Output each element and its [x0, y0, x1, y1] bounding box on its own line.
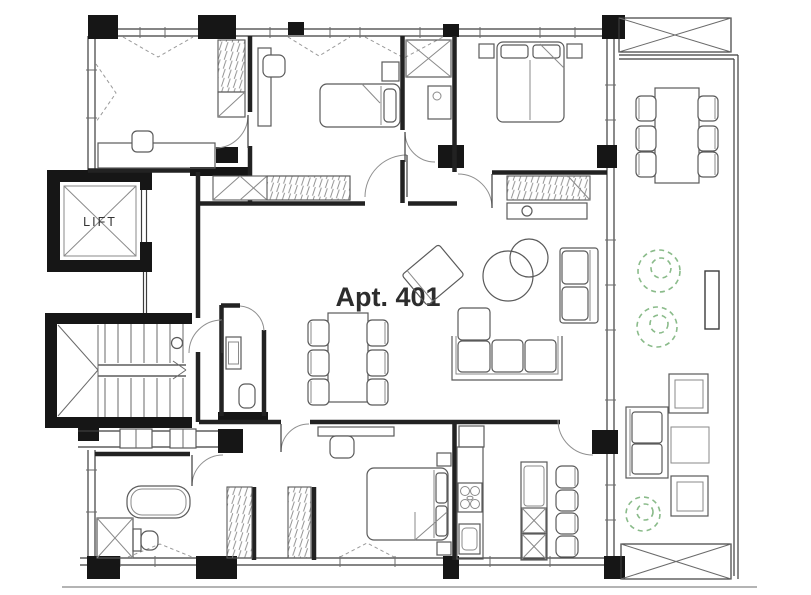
round-table [483, 251, 533, 301]
terrace-lounge-set [626, 374, 709, 516]
toilet [133, 529, 158, 551]
lift-label: LIFT [83, 215, 117, 229]
wc-room [226, 337, 255, 408]
terrace-dining-set [636, 88, 718, 183]
pillow [501, 45, 528, 58]
kitchen-sink [459, 524, 480, 554]
canopy-bottom [621, 544, 731, 579]
dressing-closet [406, 40, 451, 119]
window-swing-mark [96, 64, 116, 122]
staircase [45, 272, 218, 448]
terrace-dining-table [655, 88, 699, 183]
outdoor-coffee-table [671, 427, 709, 463]
window-swing-mark [123, 37, 193, 57]
living-dining-area: Apt. 401 [308, 239, 598, 405]
dresser [428, 86, 451, 119]
stool [132, 131, 153, 152]
bar-stools [556, 466, 578, 557]
console [507, 203, 587, 219]
toilet [239, 384, 255, 408]
door-arc [405, 132, 435, 162]
window-swing-mark [288, 37, 350, 56]
kitchen-island [521, 462, 547, 560]
pillow [533, 45, 560, 58]
nightstand [567, 44, 582, 58]
bedroom-top-right [479, 42, 590, 219]
wardrobe [227, 487, 252, 558]
door-arc [281, 424, 309, 452]
entry-door-arc [189, 320, 222, 353]
loveseat-sofa [560, 248, 598, 323]
door-arc [458, 174, 492, 208]
stair-newel [172, 338, 183, 349]
wardrobe [267, 176, 350, 200]
door-arc [240, 306, 264, 331]
decor-item [522, 206, 532, 216]
dining-table [328, 313, 368, 402]
floor-plan-drawing: LIFT [0, 0, 811, 595]
kitchen [457, 426, 578, 560]
outdoor-loveseat [626, 407, 668, 478]
apartment-label: Apt. 401 [335, 282, 440, 312]
nightstand [382, 62, 399, 81]
door-arc [215, 115, 248, 148]
wardrobe [507, 176, 590, 200]
lift-shaft: LIFT [47, 170, 152, 272]
potted-plants [626, 250, 680, 531]
nightstand [479, 44, 494, 58]
pillow [436, 506, 447, 536]
wardrobe [288, 487, 311, 558]
floor-plan-canvas: LIFT [0, 0, 811, 595]
wardrobe [218, 40, 245, 92]
canopy-top [619, 18, 731, 52]
single-bed [320, 84, 400, 127]
window-swing-mark [340, 543, 394, 557]
desk-chair [263, 55, 285, 77]
pillow [384, 89, 396, 122]
terrace [619, 18, 738, 579]
cooktop [458, 483, 482, 512]
fridge [459, 426, 484, 447]
l-shaped-sofa [452, 308, 562, 380]
pillow [436, 473, 447, 503]
terrace-pillar [705, 271, 719, 329]
desk [318, 427, 394, 436]
nightstand [437, 453, 451, 466]
desk-chair [330, 436, 354, 458]
door-arc [192, 455, 223, 486]
door-arc [558, 420, 593, 455]
desk [98, 143, 215, 168]
nightstand [437, 542, 451, 555]
round-table [510, 239, 548, 277]
bathroom [97, 486, 311, 558]
bedroom-bottom [318, 427, 451, 555]
